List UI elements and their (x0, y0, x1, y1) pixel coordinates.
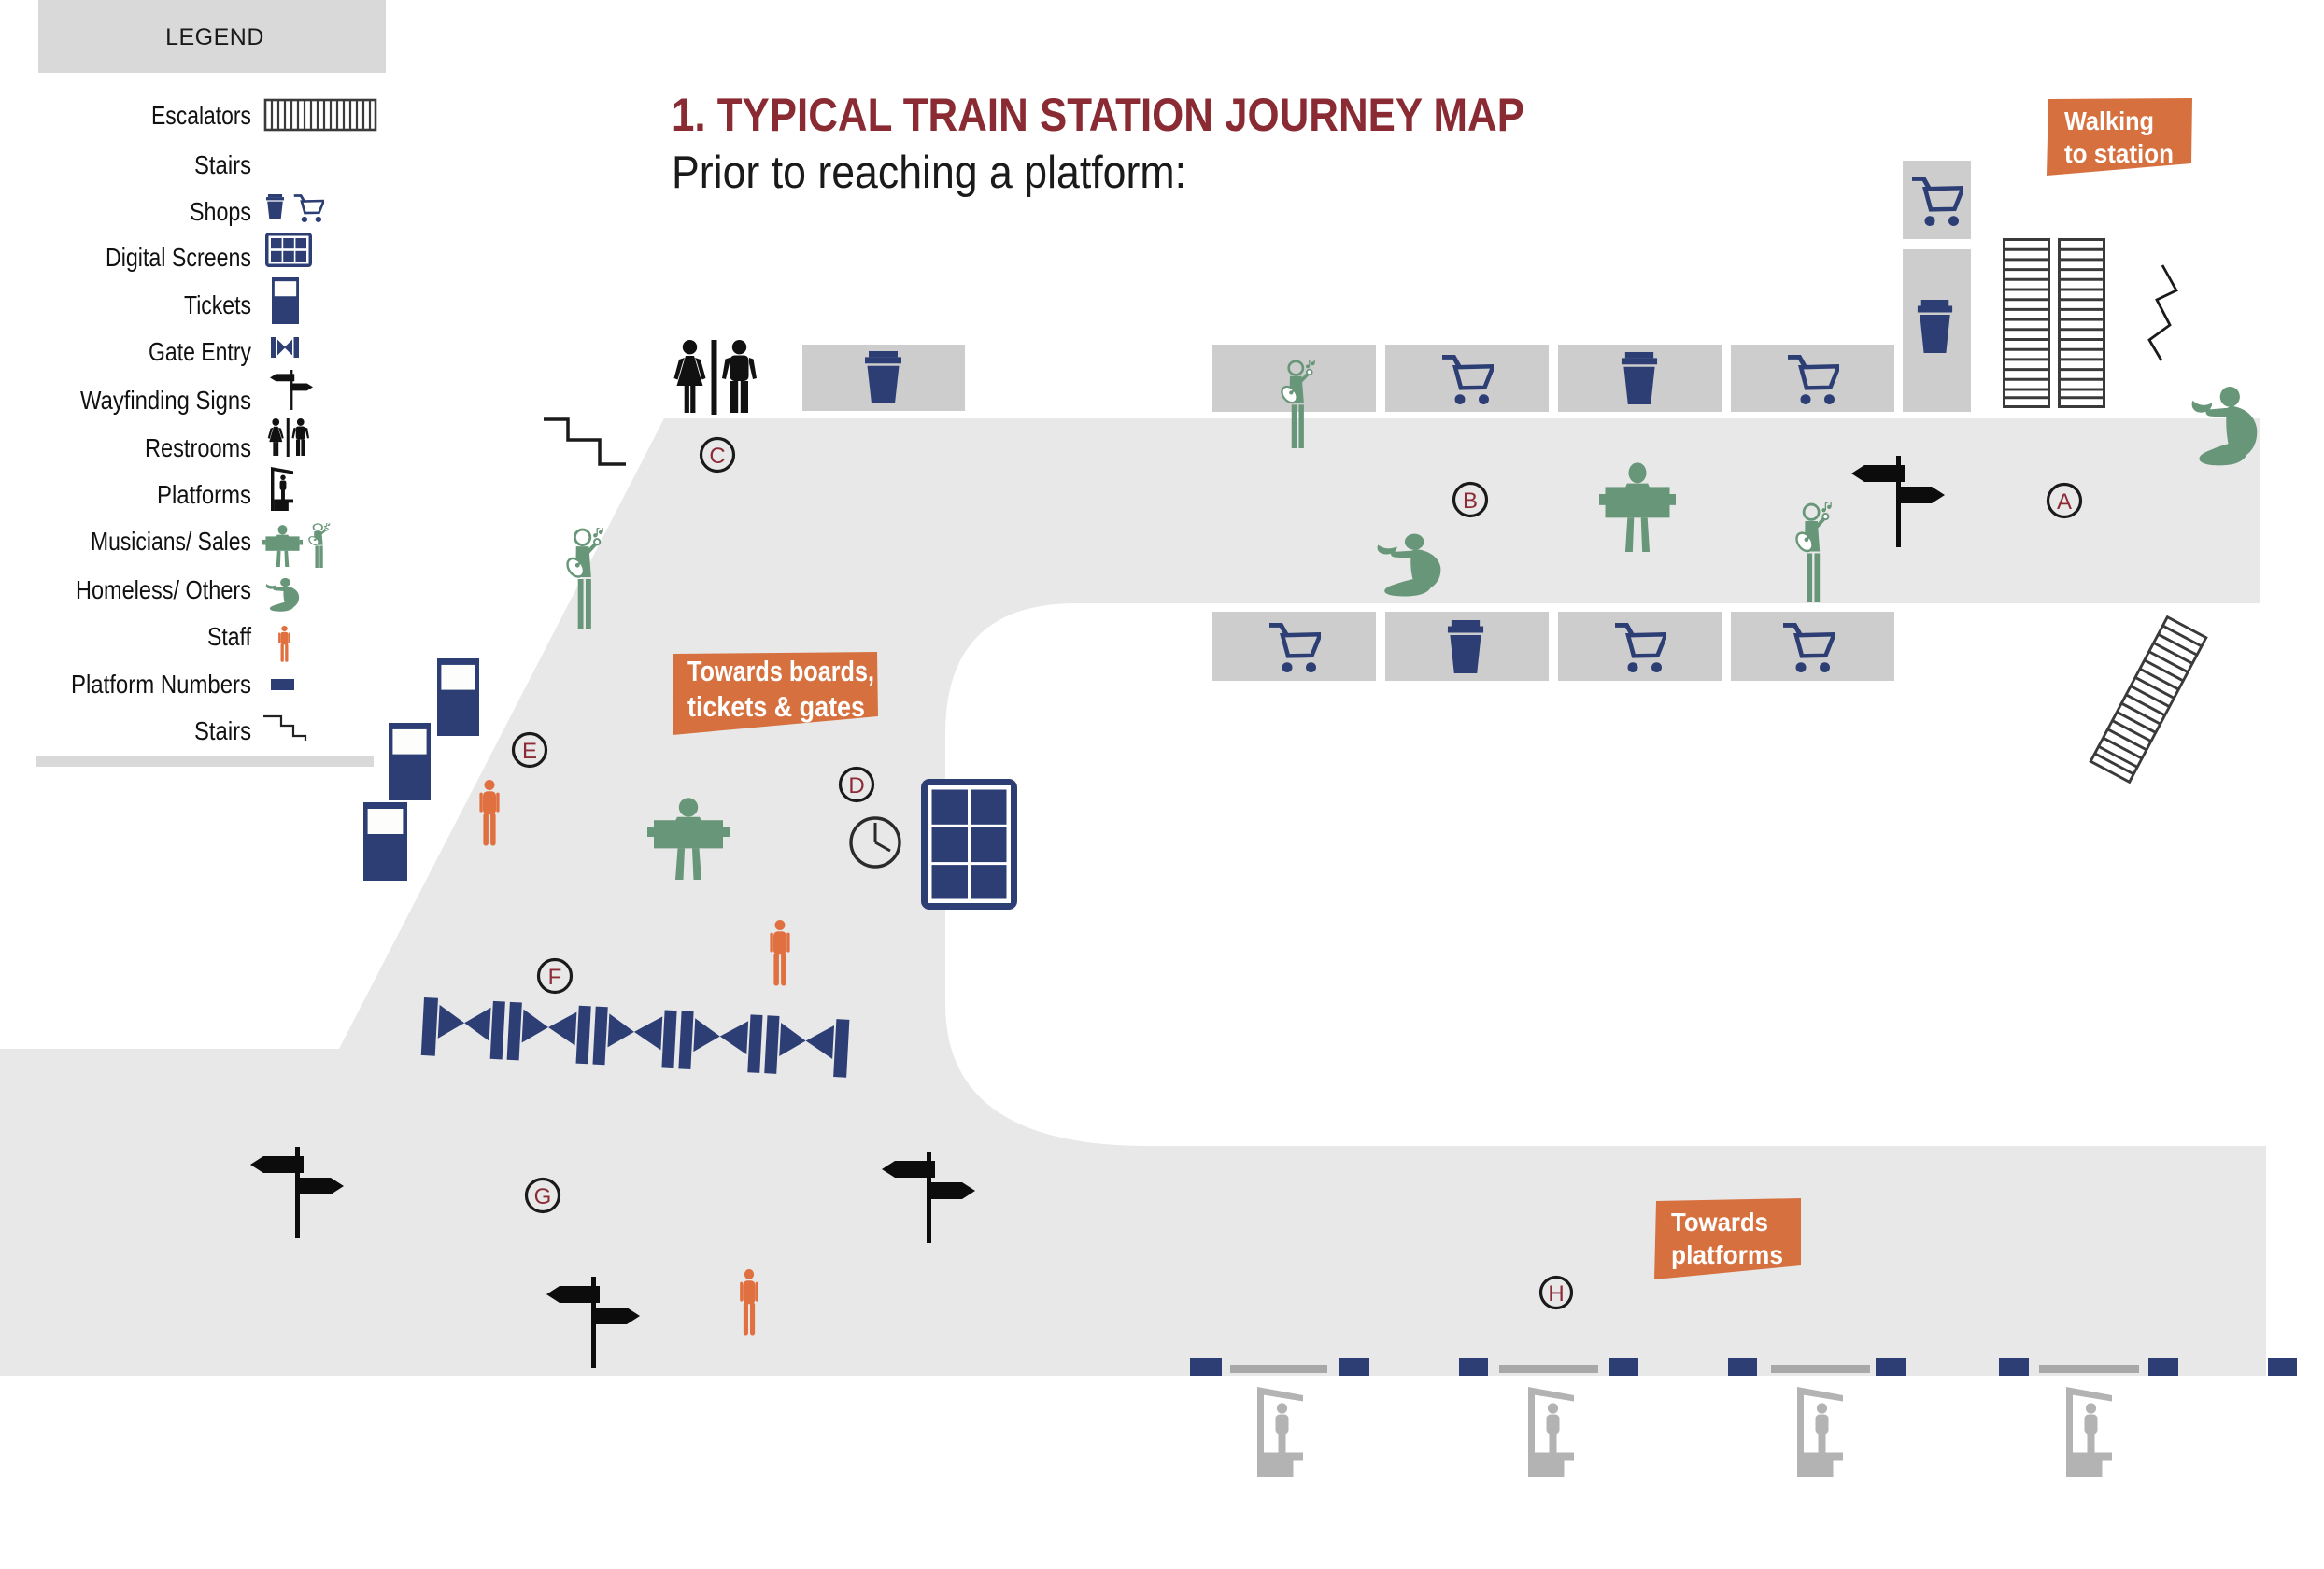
svg-text:Platforms: Platforms (157, 480, 251, 509)
svg-text:to station: to station (2064, 139, 2174, 168)
svg-text:B: B (1463, 488, 1478, 514)
svg-text:F: F (548, 965, 562, 990)
svg-text:Platform Numbers: Platform Numbers (71, 670, 251, 699)
svg-text:G: G (534, 1184, 552, 1209)
svg-text:Prior to reaching a platform:: Prior to reaching a platform: (672, 148, 1186, 198)
svg-text:Digital Screens: Digital Screens (106, 243, 251, 272)
svg-text:Homeless/ Others: Homeless/ Others (76, 575, 251, 604)
svg-text:E: E (522, 739, 537, 764)
svg-text:platforms: platforms (1671, 1240, 1783, 1269)
svg-text:Restrooms: Restrooms (145, 433, 251, 462)
svg-text:C: C (709, 444, 725, 469)
svg-text:Escalators: Escalators (151, 101, 251, 130)
svg-text:Towards boards,: Towards boards, (687, 655, 874, 687)
svg-text:Shops: Shops (190, 197, 251, 226)
svg-text:Wayfinding Signs: Wayfinding Signs (80, 386, 251, 415)
svg-text:Staff: Staff (207, 622, 251, 651)
svg-text:D: D (848, 773, 864, 799)
svg-text:1. TYPICAL TRAIN STATION JOURN: 1. TYPICAL TRAIN STATION JOURNEY MAP (672, 89, 1524, 141)
svg-text:Walking: Walking (2064, 106, 2154, 135)
svg-text:Towards: Towards (1671, 1208, 1768, 1237)
svg-text:H: H (1548, 1281, 1564, 1307)
svg-text:tickets & gates: tickets & gates (687, 690, 865, 723)
svg-text:A: A (2057, 489, 2072, 515)
svg-text:Gate Entry: Gate Entry (149, 337, 251, 366)
svg-text:Tickets: Tickets (184, 290, 251, 319)
svg-text:Musicians/ Sales: Musicians/ Sales (91, 527, 251, 556)
svg-text:Stairs: Stairs (194, 716, 251, 745)
svg-text:LEGEND: LEGEND (165, 24, 264, 50)
svg-text:Stairs: Stairs (194, 150, 251, 179)
